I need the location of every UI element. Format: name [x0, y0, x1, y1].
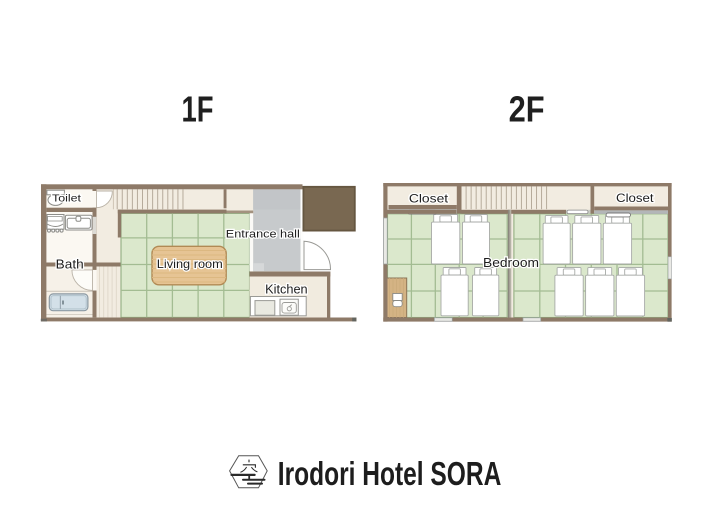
svg-text:Bedroom: Bedroom: [483, 255, 539, 270]
svg-text:Irodori Hotel SORA: Irodori Hotel SORA: [278, 456, 502, 493]
svg-text:Living room: Living room: [157, 257, 223, 271]
svg-text:Closet: Closet: [409, 191, 449, 205]
svg-text:Closet: Closet: [616, 191, 654, 205]
svg-text:Toilet: Toilet: [52, 192, 81, 204]
svg-text:Entrance hall: Entrance hall: [226, 229, 300, 241]
svg-text:2F: 2F: [509, 89, 545, 130]
svg-text:Kitchen: Kitchen: [265, 283, 308, 297]
svg-text:1F: 1F: [182, 89, 214, 130]
svg-text:Bath: Bath: [56, 258, 84, 272]
